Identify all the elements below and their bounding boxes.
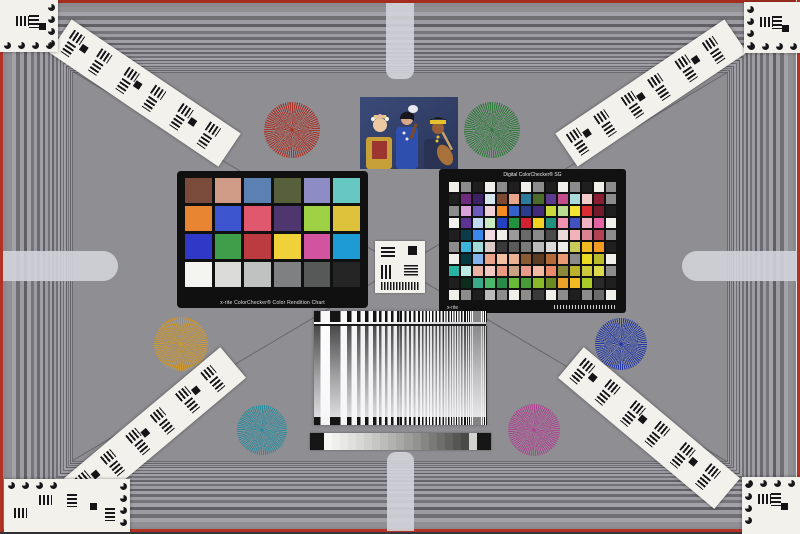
color-patch	[546, 278, 556, 288]
sweep-bars	[422, 311, 444, 322]
color-patch	[473, 254, 483, 264]
color-patch	[449, 182, 459, 192]
color-patch	[570, 278, 580, 288]
top-center-marker-tab	[386, 3, 414, 79]
color-patch	[558, 194, 568, 204]
color-patch	[606, 218, 616, 228]
color-patch	[533, 218, 543, 228]
bar-pattern	[39, 495, 52, 505]
color-patch	[485, 278, 495, 288]
bar-pattern	[695, 474, 711, 490]
color-patch	[497, 230, 507, 240]
bar-pattern	[184, 397, 200, 413]
colorchecker-classic-caption: x-rite ColorChecker® Color Rendition Cha…	[177, 300, 368, 306]
color-patch	[509, 266, 519, 276]
color-patch	[215, 206, 242, 231]
bar-pattern	[159, 418, 175, 434]
pacman-mark	[4, 42, 11, 49]
color-patch	[558, 266, 568, 276]
pacman-mark	[760, 480, 767, 487]
color-patch	[473, 206, 483, 216]
color-patch	[274, 234, 301, 259]
color-patch	[497, 194, 507, 204]
color-patch	[485, 230, 495, 240]
color-patch	[449, 230, 459, 240]
bar-pattern	[142, 96, 158, 112]
wedge-end-cap	[477, 433, 491, 450]
color-patch	[497, 254, 507, 264]
sweep-bars	[336, 311, 358, 322]
sweep-bars	[379, 417, 401, 425]
bar-pattern	[760, 17, 773, 27]
pacman-mark	[747, 30, 754, 37]
color-patch	[533, 290, 543, 300]
pacman-mark	[48, 16, 55, 23]
color-patch	[473, 266, 483, 276]
color-patch	[509, 278, 519, 288]
color-patch	[497, 242, 507, 252]
color-patch	[546, 194, 556, 204]
color-patch	[244, 206, 271, 231]
black-square	[691, 55, 701, 65]
left-center-marker-tab	[3, 251, 118, 281]
color-patch	[521, 290, 531, 300]
color-patch	[570, 290, 580, 300]
color-patch	[485, 206, 495, 216]
corner-resolution-card-tr	[744, 2, 800, 53]
color-patch	[304, 234, 331, 259]
pacman-mark	[745, 505, 752, 512]
color-patch	[558, 218, 568, 228]
pacman-mark	[18, 42, 25, 49]
color-patch	[274, 262, 301, 287]
color-patch	[594, 266, 604, 276]
black-square	[39, 23, 46, 30]
black-square	[588, 373, 598, 383]
wedge-step	[324, 433, 332, 450]
color-patch	[570, 266, 580, 276]
bar-pattern	[67, 494, 77, 507]
sweep-bars	[400, 311, 422, 322]
right-center-marker-tab	[682, 251, 797, 281]
color-patch	[606, 230, 616, 240]
color-patch	[473, 278, 483, 288]
color-patch	[594, 218, 604, 228]
color-patch	[570, 242, 580, 252]
color-patch	[594, 194, 604, 204]
color-patch	[449, 266, 459, 276]
color-patch	[570, 254, 580, 264]
color-patch	[274, 178, 301, 203]
color-patch	[570, 218, 580, 228]
wedge-step	[332, 433, 340, 450]
wedge-step	[380, 433, 388, 450]
wedge-step	[469, 433, 477, 450]
color-patch	[185, 206, 212, 231]
pacman-mark	[120, 495, 127, 502]
color-patch	[570, 206, 580, 216]
wedge-step	[429, 433, 437, 450]
color-patch	[521, 194, 531, 204]
pacman-mark	[747, 42, 754, 49]
color-patch	[461, 182, 471, 192]
color-patch	[533, 242, 543, 252]
color-patch	[473, 194, 483, 204]
color-patch	[485, 218, 495, 228]
color-patch	[521, 230, 531, 240]
sweep-bottom-bar-row	[314, 417, 486, 425]
black-square	[636, 92, 646, 102]
color-patch	[461, 194, 471, 204]
color-patch	[533, 254, 543, 264]
color-patch	[304, 178, 331, 203]
bar-pattern	[109, 460, 125, 476]
color-patch	[449, 254, 459, 264]
sweep-top-bar-row	[314, 311, 486, 322]
color-patch	[533, 266, 543, 276]
color-patch	[594, 254, 604, 264]
colorchecker-classic-grid	[177, 171, 368, 290]
pacman-mark	[120, 507, 127, 514]
center-target-black-square	[408, 246, 417, 255]
resolution-bar-group	[193, 118, 232, 159]
color-patch	[333, 234, 360, 259]
color-patch	[461, 242, 471, 252]
color-patch	[461, 218, 471, 228]
color-patch	[215, 178, 242, 203]
color-patch	[485, 194, 495, 204]
bar-pattern	[197, 133, 213, 149]
color-patch	[606, 206, 616, 216]
color-patch	[473, 242, 483, 252]
color-patch	[485, 254, 495, 264]
color-patch	[485, 290, 495, 300]
wedge-step	[372, 433, 380, 450]
bar-pattern	[771, 493, 781, 506]
wedge-step	[437, 433, 445, 450]
color-patch	[558, 278, 568, 288]
pacman-mark	[50, 482, 57, 489]
color-patch	[606, 194, 616, 204]
siemens-star-teal	[237, 405, 287, 455]
black-square	[79, 44, 89, 54]
bar-pattern	[115, 78, 131, 94]
corner-resolution-card-bl	[4, 479, 130, 532]
center-target-bars	[404, 265, 418, 277]
center-target-bars	[381, 247, 395, 259]
center-resolution-target	[375, 241, 425, 293]
colorchecker-sg-ruler	[554, 305, 616, 309]
color-patch	[215, 234, 242, 259]
wedge-step	[364, 433, 372, 450]
color-patch	[509, 218, 519, 228]
color-patch	[449, 218, 459, 228]
pacman-mark	[762, 43, 769, 50]
color-patch	[606, 278, 616, 288]
color-patch	[546, 206, 556, 216]
color-patch	[185, 262, 212, 287]
color-patch	[582, 266, 592, 276]
color-patch	[509, 206, 519, 216]
wedge-step	[388, 433, 396, 450]
wedge-step	[413, 433, 421, 450]
color-patch	[594, 230, 604, 240]
color-patch	[304, 262, 331, 287]
bar-pattern	[595, 389, 611, 405]
siemens-star-magenta	[508, 404, 560, 456]
black-square	[90, 503, 97, 510]
color-patch	[606, 266, 616, 276]
bar-pattern	[656, 84, 672, 100]
color-patch	[473, 218, 483, 228]
bar-pattern	[134, 439, 150, 455]
color-patch	[521, 242, 531, 252]
color-patch	[244, 262, 271, 287]
frequency-sweep-panel	[314, 311, 486, 425]
color-patch	[558, 182, 568, 192]
color-patch	[473, 182, 483, 192]
color-patch	[304, 206, 331, 231]
color-patch	[582, 242, 592, 252]
color-patch	[546, 182, 556, 192]
color-patch	[497, 218, 507, 228]
color-patch	[594, 278, 604, 288]
color-patch	[244, 234, 271, 259]
color-patch	[497, 278, 507, 288]
color-patch	[533, 206, 543, 216]
color-patch	[558, 254, 568, 264]
bar-pattern	[29, 15, 39, 28]
pacman-mark	[776, 43, 783, 50]
color-patch	[521, 218, 531, 228]
color-patch	[533, 194, 543, 204]
color-patch	[497, 182, 507, 192]
color-patch	[570, 182, 580, 192]
pacman-mark	[788, 480, 795, 487]
pacman-mark	[747, 18, 754, 25]
color-patch	[582, 206, 592, 216]
pacman-mark	[774, 480, 781, 487]
color-patch	[521, 182, 531, 192]
black-square	[781, 503, 788, 510]
bar-pattern	[209, 376, 225, 392]
colorchecker-classic-chart: x-rite ColorChecker® Color Rendition Cha…	[177, 171, 368, 308]
color-patch	[485, 182, 495, 192]
sweep-bars	[422, 417, 444, 425]
pacman-mark	[745, 517, 752, 524]
bar-pattern	[16, 16, 29, 26]
color-patch	[449, 242, 459, 252]
color-patch	[558, 290, 568, 300]
wedge-step	[453, 433, 461, 450]
sweep-bars	[443, 311, 465, 322]
pacman-mark	[746, 480, 753, 487]
black-square	[688, 457, 698, 467]
color-patch	[497, 206, 507, 216]
color-patch	[594, 206, 604, 216]
bar-pattern	[670, 453, 686, 469]
color-patch	[473, 230, 483, 240]
bar-pattern	[683, 66, 699, 82]
color-patch	[570, 194, 580, 204]
wedge-step	[421, 433, 429, 450]
bar-pattern	[758, 494, 771, 504]
sweep-bars	[314, 311, 336, 322]
color-patch	[606, 290, 616, 300]
color-patch	[185, 178, 212, 203]
sweep-bars	[357, 311, 379, 322]
black-square	[133, 80, 143, 90]
center-target-bars	[381, 282, 419, 290]
color-patch	[533, 278, 543, 288]
color-patch	[509, 242, 519, 252]
black-square	[638, 415, 648, 425]
color-patch	[582, 254, 592, 264]
siemens-star-red	[264, 102, 320, 158]
color-patch	[594, 182, 604, 192]
color-patch	[594, 290, 604, 300]
color-patch	[461, 230, 471, 240]
pacman-mark	[120, 483, 127, 490]
wedge-step	[445, 433, 453, 450]
color-patch	[509, 230, 519, 240]
color-patch	[497, 290, 507, 300]
bar-pattern	[105, 508, 115, 521]
color-patch	[558, 230, 568, 240]
pacman-mark	[745, 493, 752, 500]
bottom-center-marker-tab	[387, 452, 414, 531]
bar-pattern	[88, 59, 104, 75]
black-square	[188, 117, 198, 127]
wedge-step	[404, 433, 412, 450]
sweep-bars	[314, 417, 336, 425]
pacman-mark	[790, 43, 797, 50]
color-patch	[606, 182, 616, 192]
color-patch	[546, 218, 556, 228]
colorchecker-sg-title: Digital ColorChecker® SG	[439, 172, 626, 178]
color-patch	[582, 218, 592, 228]
color-patch	[582, 278, 592, 288]
color-patch	[497, 266, 507, 276]
color-patch	[333, 178, 360, 203]
sweep-bars	[400, 417, 422, 425]
wedge-step	[396, 433, 404, 450]
sweep-bars	[336, 417, 358, 425]
color-patch	[546, 230, 556, 240]
color-patch	[509, 182, 519, 192]
color-patch	[558, 206, 568, 216]
pacman-mark	[48, 4, 55, 11]
color-patch	[521, 278, 531, 288]
color-patch	[185, 234, 212, 259]
color-patch	[333, 206, 360, 231]
wedge-step	[461, 433, 469, 450]
bar-pattern	[620, 410, 636, 426]
wedge-step	[348, 433, 356, 450]
color-patch	[546, 290, 556, 300]
color-patch	[533, 182, 543, 192]
black-square	[782, 25, 789, 32]
color-patch	[606, 242, 616, 252]
sweep-bars	[443, 417, 465, 425]
color-patch	[215, 262, 242, 287]
color-patch	[509, 254, 519, 264]
sweep-bars	[379, 311, 401, 322]
color-patch	[449, 290, 459, 300]
color-patch	[333, 262, 360, 287]
color-patch	[533, 230, 543, 240]
color-patch	[521, 206, 531, 216]
bar-pattern	[628, 103, 644, 119]
color-patch	[449, 194, 459, 204]
color-patch	[509, 290, 519, 300]
color-patch	[473, 290, 483, 300]
colorchecker-sg-grid	[449, 182, 616, 300]
color-patch	[546, 266, 556, 276]
color-patch	[461, 266, 471, 276]
bar-pattern	[61, 41, 77, 57]
bar-pattern	[169, 114, 185, 130]
center-target-bars	[381, 265, 393, 279]
corner-resolution-card-tl	[0, 0, 58, 52]
wedge-step	[356, 433, 364, 450]
wedge-step	[340, 433, 348, 450]
color-patch	[570, 230, 580, 240]
color-patch	[485, 266, 495, 276]
color-patch	[485, 242, 495, 252]
bar-pattern	[14, 508, 27, 518]
bar-pattern	[569, 368, 585, 384]
color-patch	[582, 182, 592, 192]
color-patch	[274, 206, 301, 231]
pacman-mark	[36, 482, 43, 489]
pacman-mark	[120, 519, 127, 526]
wedge-end-cap	[310, 433, 324, 450]
bar-pattern	[710, 48, 726, 64]
color-patch	[606, 254, 616, 264]
color-patch	[582, 194, 592, 204]
pacman-mark	[32, 42, 39, 49]
siemens-star-green	[464, 102, 520, 158]
pacman-mark	[747, 6, 754, 13]
color-patch	[461, 290, 471, 300]
color-patch	[582, 230, 592, 240]
sweep-fade-overlay	[314, 326, 486, 417]
pacman-mark	[8, 482, 15, 489]
black-square	[582, 128, 592, 138]
grayscale-step-wedge	[310, 433, 491, 450]
black-square	[191, 385, 201, 395]
color-patch	[244, 178, 271, 203]
sweep-bars	[357, 417, 379, 425]
color-patch	[521, 266, 531, 276]
three-musicians-photo	[360, 97, 458, 169]
black-square	[141, 428, 151, 438]
color-patch	[582, 290, 592, 300]
bar-pattern	[601, 121, 617, 137]
color-patch	[449, 206, 459, 216]
color-patch	[461, 278, 471, 288]
colorchecker-sg-chart: Digital ColorChecker® SG x-rite	[439, 169, 626, 313]
pacman-mark	[46, 42, 53, 49]
sweep-bars	[465, 417, 487, 425]
bar-pattern	[645, 432, 661, 448]
color-patch	[449, 278, 459, 288]
pacman-mark	[22, 482, 29, 489]
color-patch	[546, 242, 556, 252]
color-patch	[558, 242, 568, 252]
color-patch	[521, 254, 531, 264]
